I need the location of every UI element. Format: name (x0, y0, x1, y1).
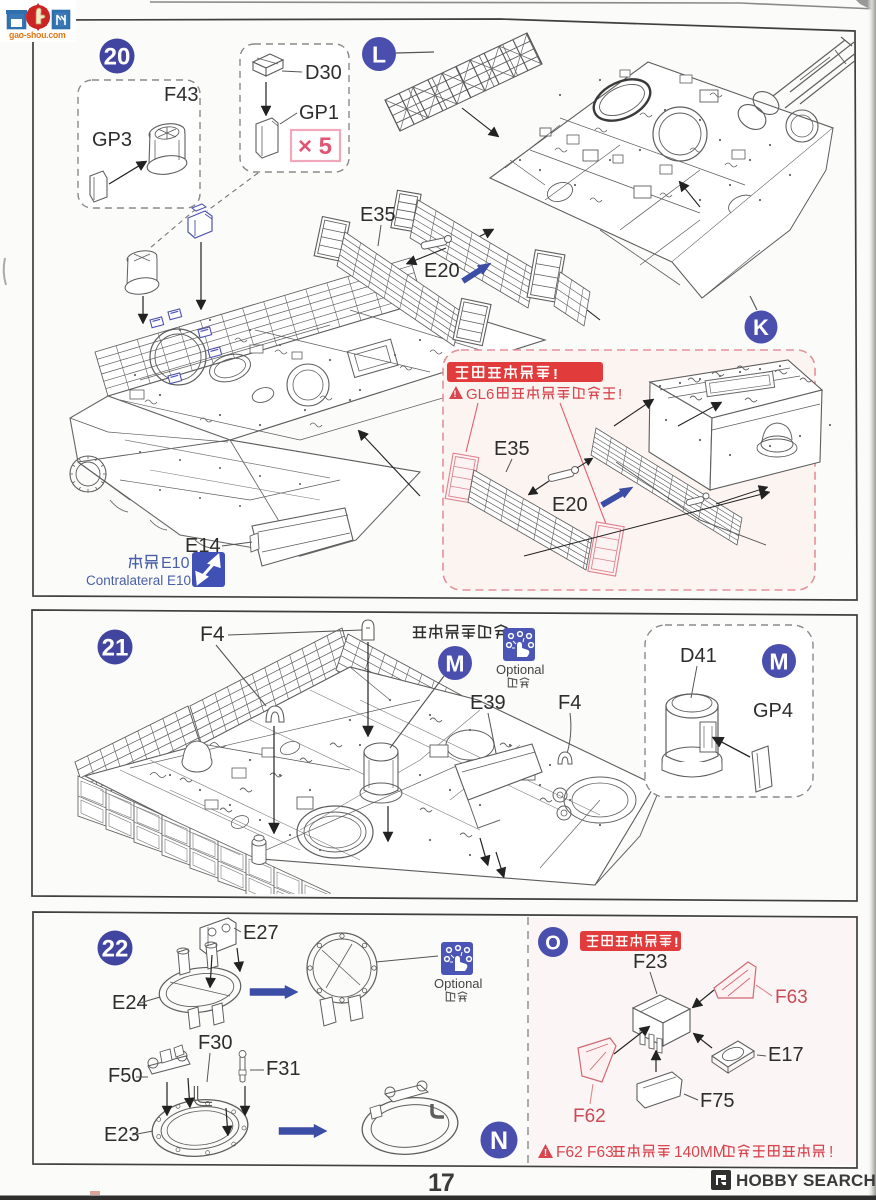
svg-text:E24: E24 (112, 992, 148, 1014)
svg-text:GP3: GP3 (92, 129, 132, 151)
svg-text:F50: F50 (108, 1065, 142, 1087)
svg-text:F43: F43 (164, 84, 198, 106)
svg-text:21: 21 (102, 635, 129, 662)
svg-text:M: M (445, 650, 464, 676)
svg-text:GP1: GP1 (299, 102, 339, 124)
svg-text:GL6: GL6 (466, 386, 494, 403)
svg-text:GP4: GP4 (753, 700, 793, 722)
svg-text:E17: E17 (768, 1044, 804, 1066)
svg-text:F75: F75 (700, 1090, 734, 1112)
svg-text:N: N (490, 1127, 508, 1155)
svg-text:D30: D30 (305, 62, 342, 84)
svg-text:L: L (372, 41, 386, 67)
svg-text:F4: F4 (200, 623, 225, 646)
svg-text:gao-shou.com: gao-shou.com (9, 30, 66, 40)
svg-text:!: ! (618, 386, 622, 403)
svg-text:F31: F31 (266, 1058, 300, 1080)
svg-text:F62 F63: F62 F63 (556, 1144, 614, 1161)
svg-text:E39: E39 (470, 692, 506, 714)
svg-text:!: ! (454, 389, 457, 399)
svg-text:M: M (769, 648, 788, 674)
svg-text:E35: E35 (494, 438, 530, 460)
svg-text:E35: E35 (360, 204, 396, 226)
svg-text:E27: E27 (243, 922, 279, 944)
svg-text:Optional: Optional (434, 976, 483, 991)
svg-text:22: 22 (102, 936, 129, 963)
svg-text:K: K (753, 315, 769, 340)
svg-text:E20: E20 (552, 494, 588, 516)
svg-text:17: 17 (428, 1169, 454, 1197)
svg-text:Optional: Optional (496, 662, 545, 677)
svg-text:!: ! (674, 934, 679, 950)
svg-text:F62: F62 (573, 1106, 606, 1127)
svg-text:F4: F4 (558, 692, 581, 714)
svg-text:Contralateral E10: Contralateral E10 (86, 573, 191, 588)
svg-text:!: ! (829, 1144, 833, 1161)
svg-text:!: ! (553, 366, 558, 383)
svg-text:F23: F23 (633, 951, 667, 973)
svg-text:E10: E10 (161, 555, 190, 572)
svg-text:× 5: × 5 (298, 133, 332, 160)
svg-text:F30: F30 (198, 1032, 232, 1054)
svg-text:O: O (545, 932, 561, 954)
svg-text:140MM: 140MM (674, 1144, 726, 1161)
svg-text:HOBBY SEARCH: HOBBY SEARCH (736, 1171, 876, 1190)
svg-text:E20: E20 (424, 260, 460, 282)
svg-text:20: 20 (104, 44, 131, 71)
svg-text:D41: D41 (680, 645, 717, 667)
svg-text:F63: F63 (775, 987, 808, 1008)
svg-text:!: ! (544, 1148, 547, 1159)
